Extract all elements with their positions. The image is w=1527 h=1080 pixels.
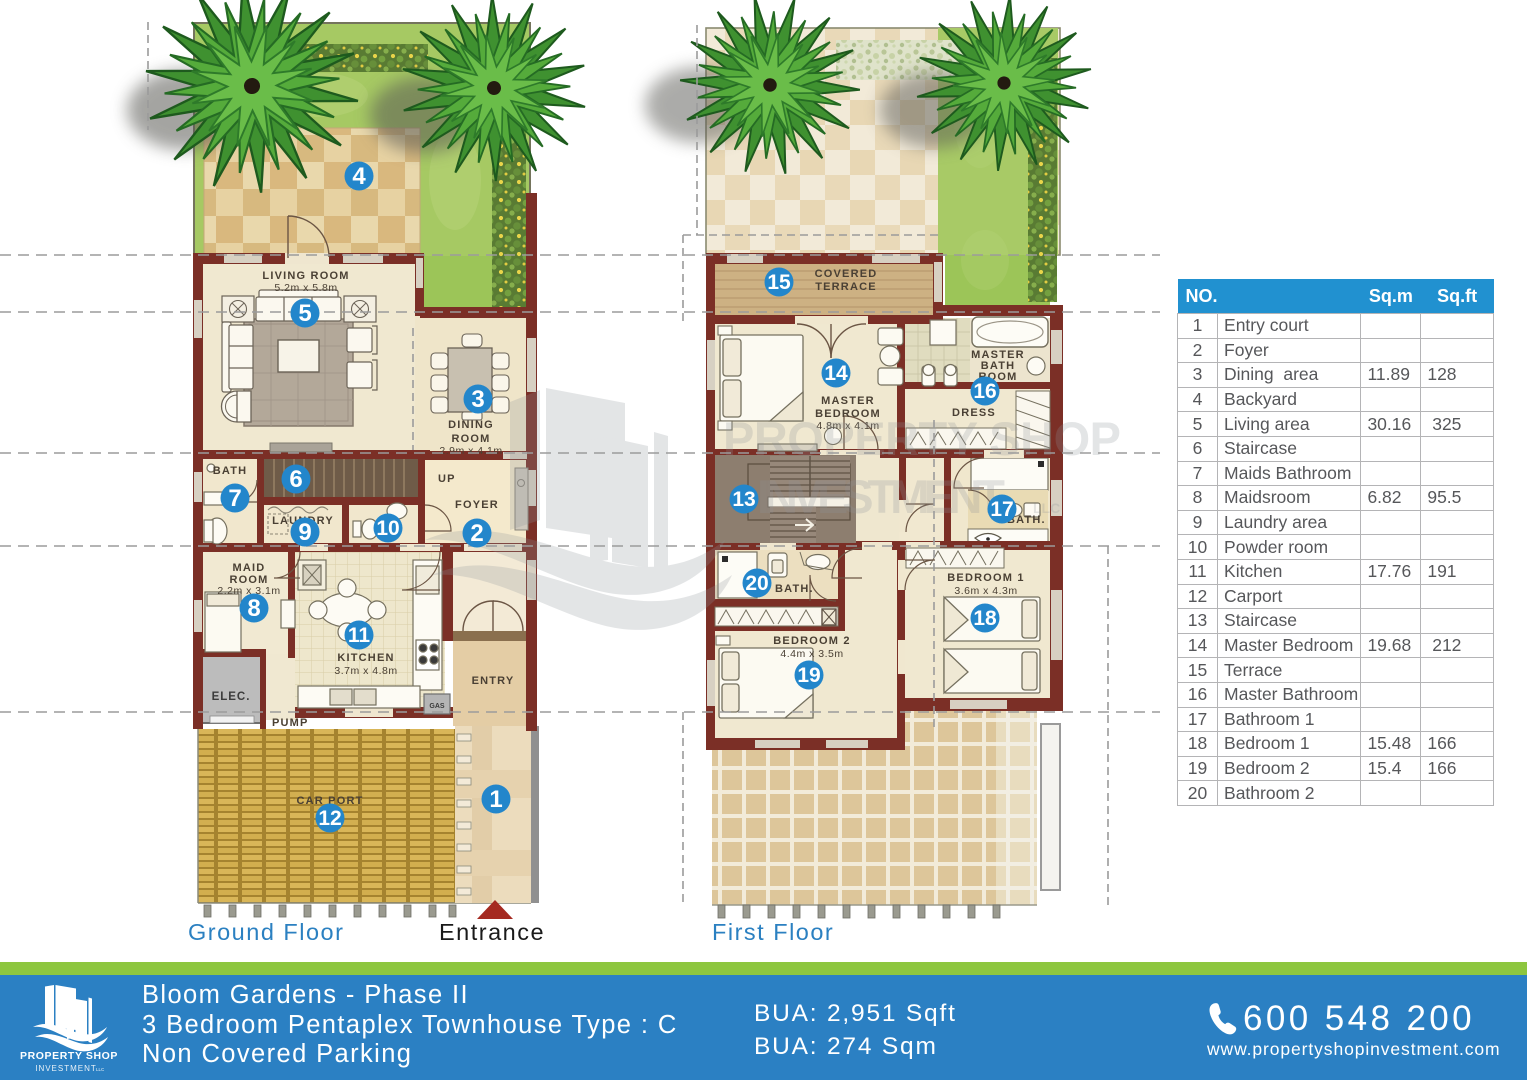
svg-text:8: 8: [247, 595, 260, 622]
svg-text:12: 12: [318, 807, 341, 830]
svg-text:3.7m x 4.8m: 3.7m x 4.8m: [334, 665, 397, 677]
svg-text:ENTRY: ENTRY: [472, 675, 515, 687]
svg-text:13: 13: [732, 488, 755, 511]
svg-text:16: 16: [973, 380, 996, 403]
svg-text:17: 17: [990, 498, 1013, 521]
svg-text:LLC: LLC: [1033, 500, 1060, 516]
svg-text:TERRACE: TERRACE: [815, 281, 877, 293]
svg-text:ELEC.: ELEC.: [212, 691, 251, 703]
svg-text:1: 1: [489, 786, 502, 813]
svg-text:11: 11: [348, 624, 371, 647]
svg-text:2.9m x 4.1m: 2.9m x 4.1m: [439, 445, 502, 457]
svg-text:PROPERTY SHOP: PROPERTY SHOP: [20, 1050, 118, 1062]
svg-text:BATH: BATH: [213, 465, 248, 477]
svg-text:DINING: DINING: [448, 419, 494, 431]
svg-text:5.2m x 5.8m: 5.2m x 5.8m: [274, 282, 337, 294]
svg-text:6: 6: [289, 466, 302, 493]
svg-text:LLC: LLC: [96, 1067, 105, 1072]
svg-text:20: 20: [745, 572, 768, 595]
svg-text:3.6m x 4.3m: 3.6m x 4.3m: [954, 585, 1017, 597]
svg-text:COVERED: COVERED: [815, 268, 878, 280]
svg-text:LIVING ROOM: LIVING ROOM: [262, 270, 349, 282]
svg-text:UP: UP: [438, 473, 456, 485]
svg-text:5: 5: [298, 300, 311, 327]
svg-text:ROOM: ROOM: [451, 433, 490, 445]
svg-text:7: 7: [228, 485, 241, 512]
svg-text:19: 19: [797, 664, 820, 687]
svg-text:10: 10: [376, 517, 399, 540]
svg-text:MAID: MAID: [233, 562, 266, 574]
svg-text:18: 18: [973, 607, 997, 630]
svg-text:Entrance: Entrance: [439, 919, 545, 945]
svg-text:4.4m x 3.5m: 4.4m x 3.5m: [780, 648, 843, 660]
svg-text:BATH.: BATH.: [775, 583, 814, 595]
svg-text:15: 15: [767, 271, 791, 294]
svg-text:First Floor: First Floor: [712, 919, 834, 945]
svg-text:14: 14: [824, 362, 848, 385]
svg-text:PUMP: PUMP: [272, 717, 309, 729]
svg-text:BEDROOM 1: BEDROOM 1: [947, 572, 1024, 584]
svg-text:9: 9: [298, 519, 311, 546]
svg-text:BEDROOM 2: BEDROOM 2: [773, 635, 850, 647]
svg-text:PROPERTY SHOP: PROPERTY SHOP: [723, 412, 1121, 465]
svg-text:INVESTMENT: INVESTMENT: [757, 470, 1005, 523]
svg-text:3: 3: [471, 386, 484, 413]
svg-text:Ground Floor: Ground Floor: [188, 919, 344, 945]
svg-text:GAS: GAS: [429, 703, 445, 710]
svg-text:2: 2: [470, 520, 483, 547]
svg-text:KITCHEN: KITCHEN: [337, 652, 394, 664]
svg-text:4: 4: [352, 163, 366, 190]
svg-text:FOYER: FOYER: [455, 499, 499, 511]
svg-text:MASTER: MASTER: [821, 395, 875, 407]
svg-text:INVESTMENT: INVESTMENT: [35, 1064, 97, 1073]
